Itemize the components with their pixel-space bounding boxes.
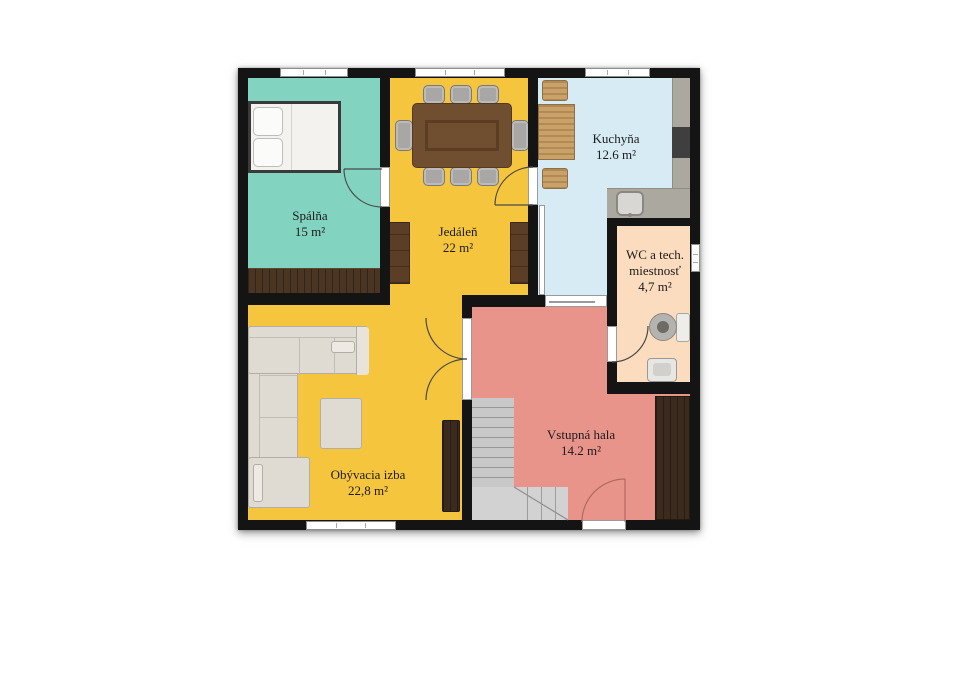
wall-wc-top (607, 218, 700, 226)
double-door-opening-living-hall (462, 318, 472, 400)
room-label-living: Obývacia izba 22,8 m² (331, 467, 406, 499)
room-name: miestnosť (626, 263, 684, 279)
room-area: 12.6 m² (593, 147, 640, 163)
floor-plan-canvas: Spálňa 15 m² Jedáleň 22 m² Kuchyňa 12.6 … (0, 0, 960, 679)
window-bedroom (280, 68, 348, 77)
door-opening-wc (607, 326, 617, 362)
room-area: 15 m² (292, 224, 327, 240)
room-label-wc: WC a tech. miestnosť 4,7 m² (626, 247, 684, 295)
floor-plan: Spálňa 15 m² Jedáleň 22 m² Kuchyňa 12.6 … (238, 68, 700, 530)
room-area: 22 m² (439, 240, 478, 256)
room-label-hall: Vstupná hala 14.2 m² (547, 427, 615, 459)
room-name: WC a tech. (626, 247, 684, 263)
door-opening-kitchen (528, 167, 538, 205)
wall-bedroom-bottom (238, 293, 390, 305)
room-name: Kuchyňa (593, 131, 640, 147)
room-area: 14.2 m² (547, 443, 615, 459)
door-frame-strip (539, 205, 545, 295)
room-name: Vstupná hala (547, 427, 615, 443)
room-name: Obývacia izba (331, 467, 406, 483)
wall-hall-top (462, 295, 545, 307)
room-name: Spálňa (292, 208, 327, 224)
window-wc (691, 244, 700, 272)
sliding-door-kitchen-hall (545, 295, 607, 307)
room-area: 4,7 m² (626, 279, 684, 295)
window-dining (415, 68, 505, 77)
room-label-dining: Jedáleň 22 m² (439, 224, 478, 256)
sliding-door-panel (549, 301, 595, 303)
wall-wc-left (607, 218, 617, 394)
front-door-opening (582, 520, 626, 530)
room-label-kitchen: Kuchyňa 12.6 m² (593, 131, 640, 163)
wall-wc-bottom (607, 382, 700, 394)
window-kitchen (585, 68, 650, 77)
room-name: Jedáleň (439, 224, 478, 240)
window-living (306, 521, 396, 530)
door-opening-bedroom (380, 167, 390, 207)
room-area: 22,8 m² (331, 483, 406, 499)
room-label-bedroom: Spálňa 15 m² (292, 208, 327, 240)
